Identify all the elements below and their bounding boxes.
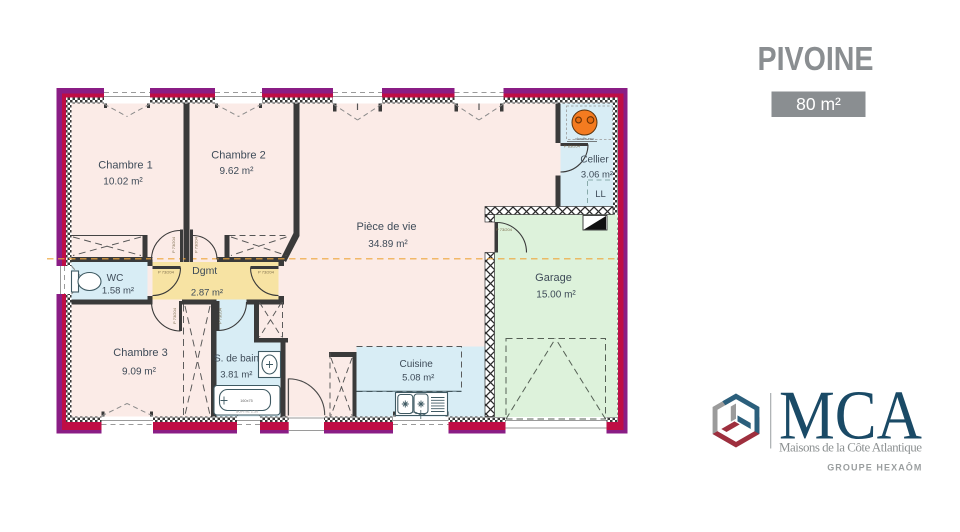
svg-text:Cellier: Cellier — [580, 155, 609, 166]
svg-text:Garage: Garage — [535, 272, 572, 284]
svg-text:GROUPE HEXAÔM: GROUPE HEXAÔM — [827, 462, 922, 473]
svg-text:10.02 m²: 10.02 m² — [103, 177, 143, 188]
svg-text:P 73/204: P 73/204 — [158, 270, 175, 275]
svg-text:P 73/204: P 73/204 — [194, 236, 199, 253]
svg-text:P 73/204: P 73/204 — [172, 307, 177, 324]
svg-text:P 73/204: P 73/204 — [258, 270, 275, 275]
svg-text:Pièce de vie: Pièce de vie — [357, 221, 417, 233]
svg-text:P 73/204: P 73/204 — [496, 227, 513, 232]
svg-text:LL: LL — [595, 189, 606, 200]
svg-text:2.87 m²: 2.87 m² — [191, 288, 223, 299]
svg-text:5.08 m²: 5.08 m² — [402, 373, 434, 384]
svg-text:Chambre 3: Chambre 3 — [113, 347, 167, 359]
svg-text:9.62 m²: 9.62 m² — [220, 166, 255, 177]
svg-text:80 m²: 80 m² — [796, 94, 841, 114]
svg-text:Dgmt: Dgmt — [192, 265, 217, 277]
svg-text:9.09 m²: 9.09 m² — [122, 367, 157, 378]
svg-text:Maisons de la Côte Atlantique: Maisons de la Côte Atlantique — [779, 440, 922, 455]
svg-text:P 73/204: P 73/204 — [171, 236, 176, 253]
svg-text:34.89 m²: 34.89 m² — [368, 239, 408, 250]
svg-text:Chambre 2: Chambre 2 — [211, 150, 265, 162]
svg-text:WC: WC — [107, 273, 124, 284]
svg-text:15.00 m²: 15.00 m² — [536, 290, 576, 301]
svg-text:S. de bain: S. de bain — [214, 353, 259, 364]
svg-text:PIVOINE: PIVOINE — [758, 40, 874, 77]
svg-text:3.06 m²: 3.06 m² — [581, 170, 613, 181]
svg-text:P 83/204: P 83/204 — [564, 144, 581, 149]
svg-text:SORTIE 2.50: SORTIE 2.50 — [236, 410, 259, 414]
svg-text:3.81 m²: 3.81 m² — [220, 369, 252, 380]
svg-text:P 73/204: P 73/204 — [218, 307, 223, 324]
svg-text:Chambre 1: Chambre 1 — [98, 159, 152, 171]
svg-text:chauffe-eau: chauffe-eau — [575, 137, 593, 141]
svg-text:160x75: 160x75 — [240, 399, 252, 403]
svg-text:1.58 m²: 1.58 m² — [102, 285, 134, 296]
svg-text:Cuisine: Cuisine — [400, 359, 434, 370]
